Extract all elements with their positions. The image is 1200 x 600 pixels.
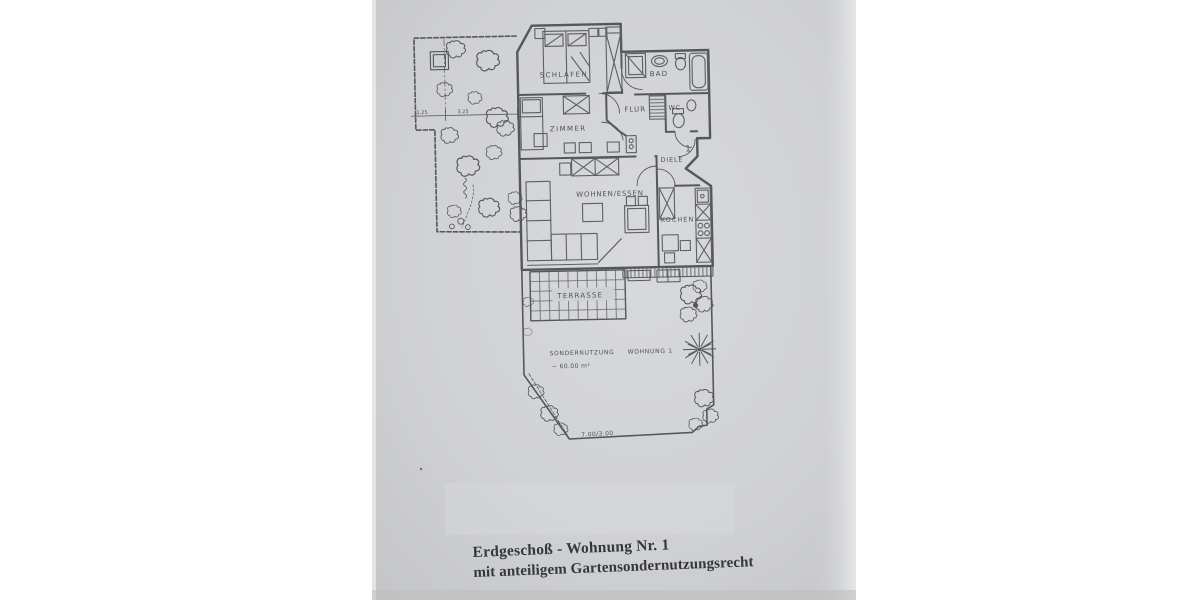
paper-right-edge bbox=[812, 0, 856, 600]
label-wohnen-essen: WOHNEN/ESSEN bbox=[576, 189, 644, 198]
label-bad: BAD bbox=[650, 70, 669, 78]
floorplan-svg: SCHLAFEN ZIMMER BAD FLUR WC DIELE WOHNEN… bbox=[0, 0, 1200, 600]
paper-sheen bbox=[445, 483, 735, 535]
label-garden-area: ~ 60.00 m² bbox=[552, 363, 591, 371]
paper-bottom-shade bbox=[372, 590, 856, 600]
label-zimmer: ZIMMER bbox=[550, 125, 587, 134]
wall-hatch-band bbox=[623, 266, 713, 278]
radiator-shelf bbox=[649, 95, 665, 119]
label-wohnung-1: WOHNUNG 1 bbox=[627, 348, 672, 356]
label-schlafen: SCHLAFEN bbox=[540, 71, 589, 80]
label-terrasse: TERRASSE bbox=[556, 291, 603, 300]
paper-speck bbox=[420, 468, 422, 470]
shower-icon bbox=[625, 53, 645, 77]
label-flur: FLUR bbox=[624, 105, 646, 113]
label-kochen: KOCHEN bbox=[661, 215, 695, 224]
label-dim-right: 3.25 bbox=[457, 109, 468, 115]
label-diele: DIELE bbox=[660, 156, 683, 164]
label-sondernutzung: SONDERNUTZUNG bbox=[550, 349, 615, 357]
photo-of-floorplan-page: SCHLAFEN ZIMMER BAD FLUR WC DIELE WOHNEN… bbox=[0, 0, 1200, 600]
paper-left-edge bbox=[372, 0, 376, 600]
label-wc: WC bbox=[668, 104, 681, 112]
label-dim-left: 1.25 bbox=[416, 110, 427, 116]
label-entrance-number: 1 bbox=[685, 144, 691, 154]
